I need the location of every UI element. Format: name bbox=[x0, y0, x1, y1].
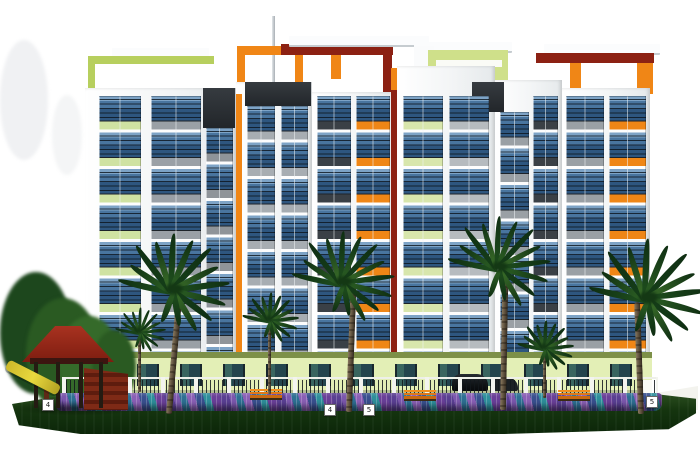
gazebo-post bbox=[99, 362, 103, 408]
roof-slab-center bbox=[289, 36, 429, 47]
facade-dark-header bbox=[203, 88, 235, 128]
garden-bench bbox=[250, 389, 282, 400]
palm-tree-small-trunk bbox=[268, 326, 271, 394]
maroon-accent-strip bbox=[391, 74, 397, 354]
orange-accent-strip bbox=[236, 94, 242, 354]
background-haze bbox=[0, 40, 48, 160]
balcony-bay bbox=[566, 96, 604, 352]
balcony-bay bbox=[317, 96, 351, 352]
orange-roof-post-right bbox=[570, 63, 581, 89]
palm-crown-core bbox=[538, 343, 549, 350]
playground-stairs bbox=[84, 368, 128, 410]
marker-label: 4 bbox=[42, 399, 54, 411]
garden-bench bbox=[404, 390, 436, 401]
garden-bench bbox=[558, 390, 590, 401]
balcony-bay bbox=[533, 96, 558, 352]
orange-accent-patch bbox=[391, 68, 397, 90]
balcony-bay bbox=[99, 96, 141, 352]
maroon-roof-beam-right bbox=[536, 53, 654, 63]
marker-label: 4 bbox=[324, 404, 336, 416]
palm-crown-core bbox=[263, 315, 274, 322]
marker-label: 5 bbox=[363, 404, 375, 416]
architectural-rendering: 4455 bbox=[0, 0, 700, 459]
palm-crown-core bbox=[639, 291, 658, 304]
background-haze bbox=[52, 95, 82, 175]
facade-dark-header bbox=[245, 82, 311, 106]
balcony-bay bbox=[281, 106, 308, 352]
marker-label: 5 bbox=[646, 396, 658, 408]
palm-crown-core bbox=[133, 327, 143, 334]
gazebo-post bbox=[79, 362, 83, 408]
palm-tree-small-trunk bbox=[138, 338, 141, 392]
balcony-bay bbox=[403, 96, 443, 352]
gazebo-roof-band bbox=[30, 358, 108, 364]
orange-roof-post bbox=[331, 55, 341, 79]
palm-crown-core bbox=[165, 283, 183, 295]
palm-crown-core bbox=[491, 261, 508, 272]
palm-crown-core bbox=[335, 276, 352, 287]
